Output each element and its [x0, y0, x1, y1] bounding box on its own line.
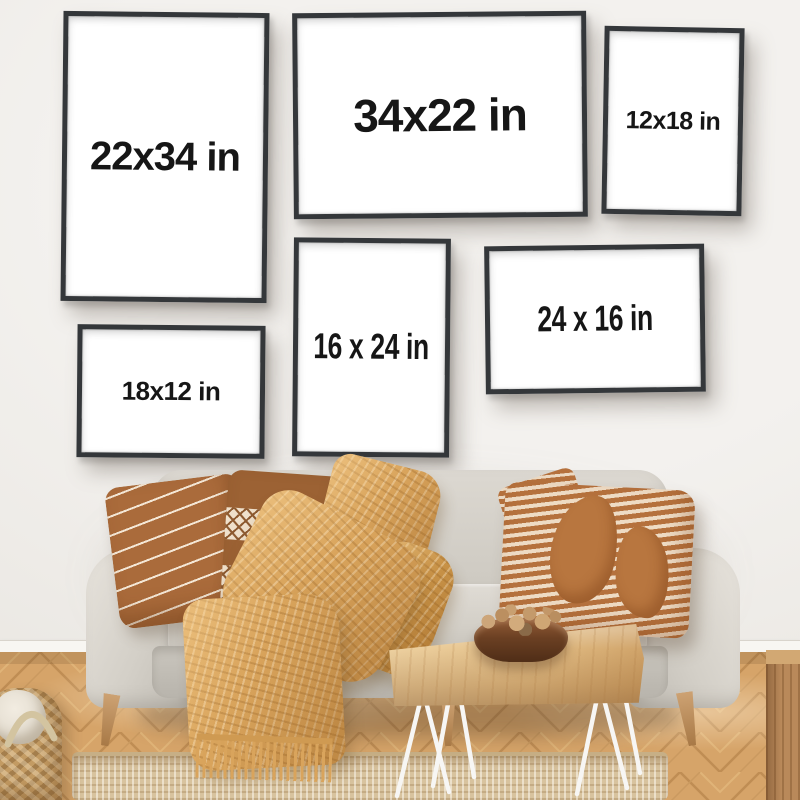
frame-18x12: 18x12 in [76, 324, 265, 459]
pillow-pattern-shape [613, 526, 671, 620]
frame-24x16: 24 x 16 in [484, 244, 706, 395]
frame-size-label: 18x12 in [122, 376, 221, 408]
frame-16x24: 16 x 24 in [292, 237, 451, 457]
frame-size-label: 16 x 24 in [314, 326, 430, 368]
frame-size-label: 24 x 16 in [537, 298, 653, 341]
frame-size-label: 12x18 in [625, 106, 720, 137]
jute-rug [72, 752, 668, 800]
bowl-of-nuts [478, 604, 564, 636]
throw-blanket-fringe [195, 734, 332, 783]
frame-size-label: 34x22 in [353, 87, 527, 143]
living-room-scene: 22x34 in 34x22 in 12x18 in 16 x 24 in 24… [0, 0, 800, 800]
wooden-side-table [766, 650, 800, 800]
frame-size-label: 22x34 in [90, 134, 240, 181]
pillow-pattern-shape [542, 489, 626, 609]
frame-12x18: 12x18 in [601, 26, 744, 216]
frame-34x22: 34x22 in [292, 11, 588, 220]
frame-22x34: 22x34 in [60, 11, 269, 303]
